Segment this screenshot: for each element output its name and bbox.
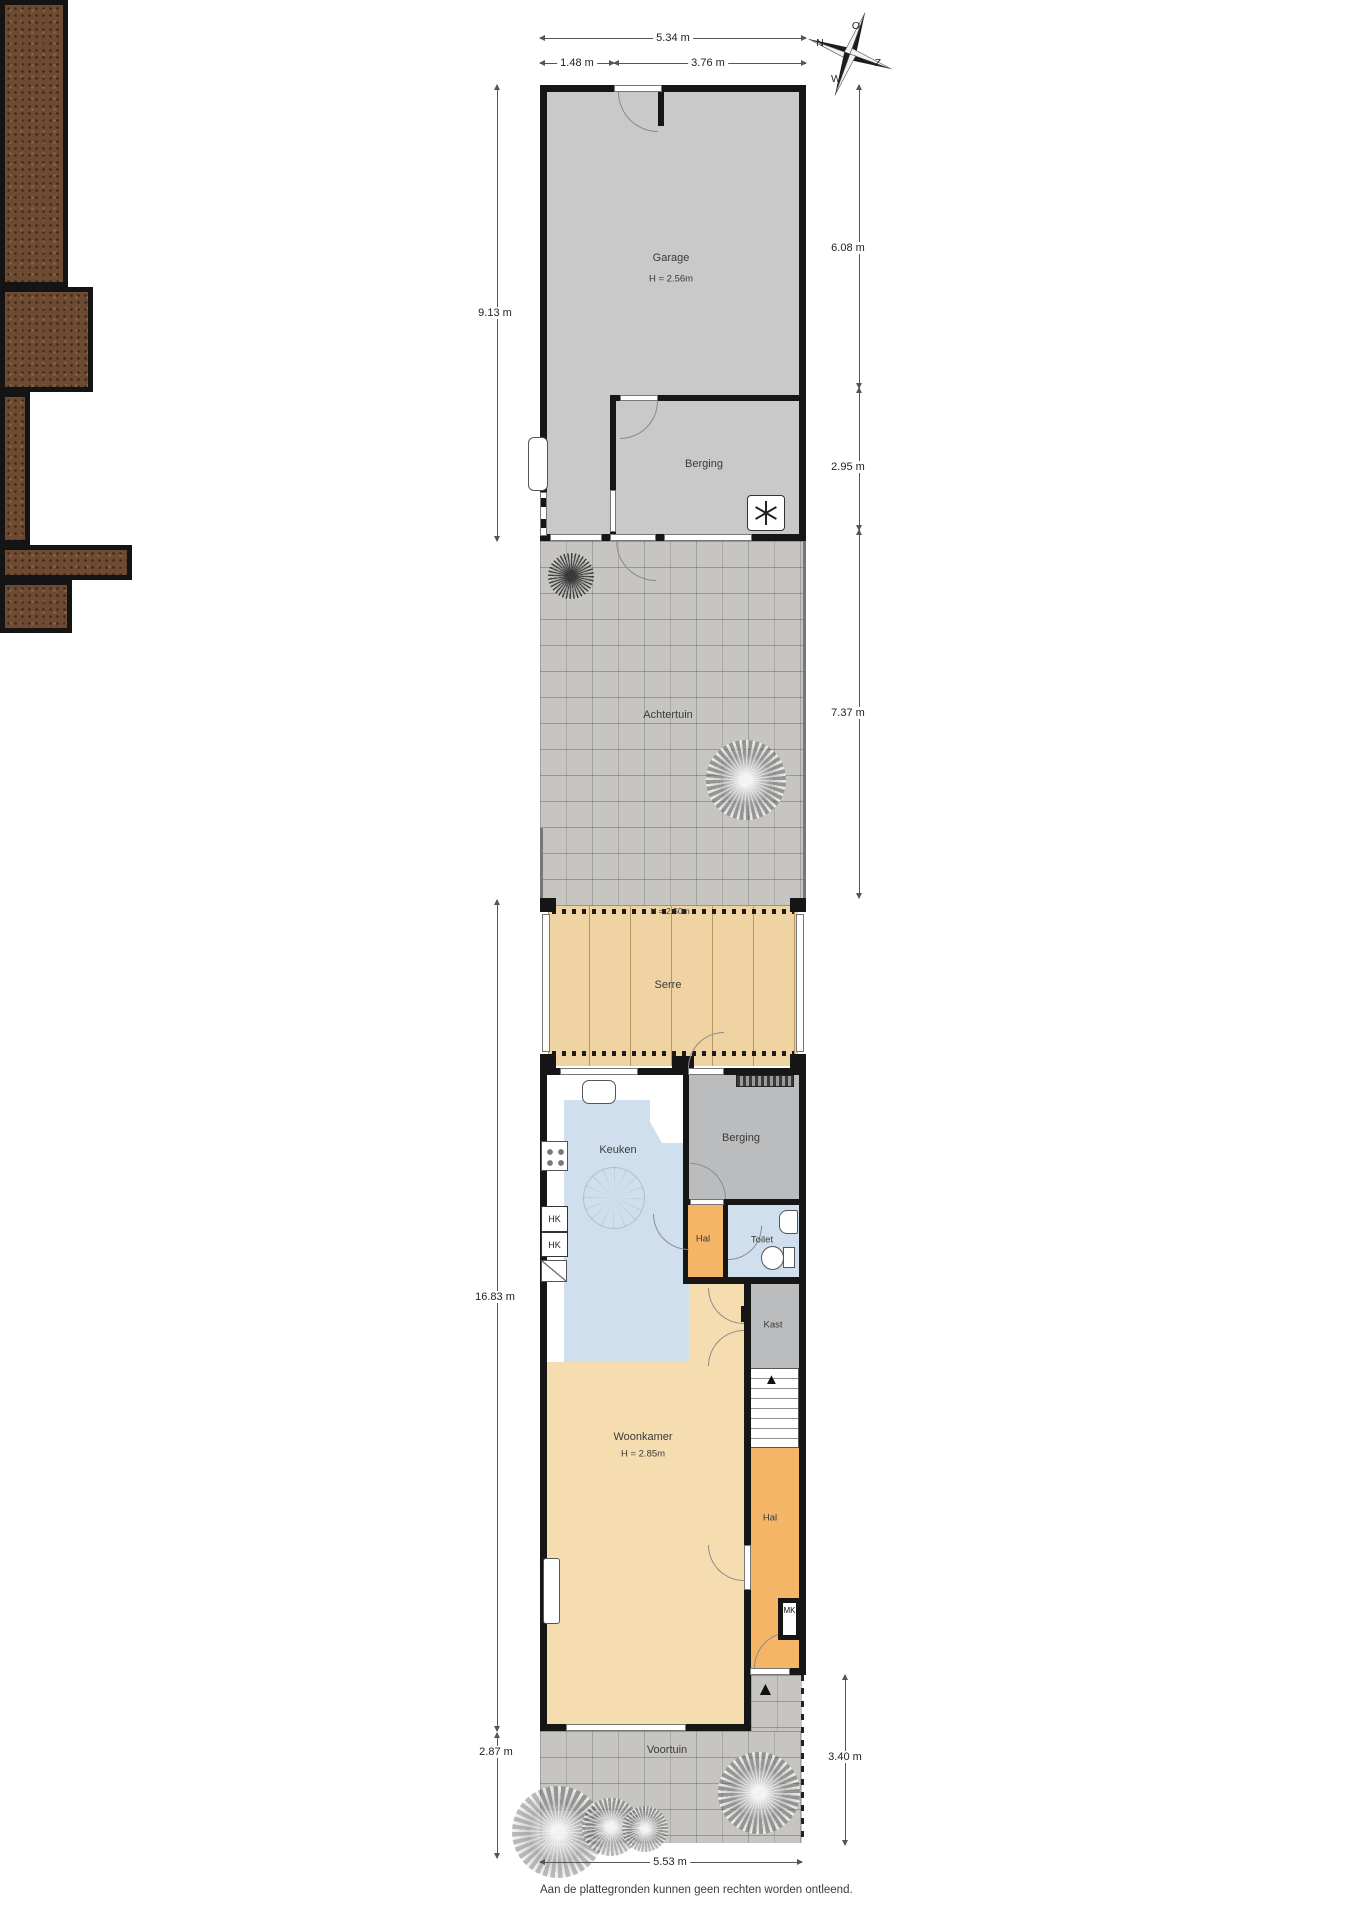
round-rug-ghost <box>583 1167 645 1229</box>
wall <box>799 1068 806 1675</box>
meterkast: MK <box>782 1602 797 1636</box>
compass-south-label: Z <box>875 57 882 69</box>
room-label-voortuin: Voortuin <box>647 1744 687 1756</box>
window <box>550 534 602 541</box>
garden-fence-left <box>540 828 543 906</box>
compass-rose: N O Z W <box>798 2 902 106</box>
window <box>542 914 550 1052</box>
closet-label: MK <box>784 1606 796 1615</box>
room-ceiling-serre: H = 2.50m <box>650 906 689 916</box>
stairs-up-arrow-icon: ▲ <box>764 1372 779 1387</box>
vent-grille <box>736 1075 794 1087</box>
door-opening <box>690 1199 724 1205</box>
ventilation-fan-icon <box>747 495 785 531</box>
dimension-label: 1.48 m <box>557 57 597 69</box>
dimension-label: 7.37 m <box>828 707 868 719</box>
room-ceiling-garage: H = 2.56m <box>649 274 693 285</box>
room-label-kast: Kast <box>763 1320 782 1331</box>
room-floor-woonkamer <box>547 1362 744 1724</box>
stove-icon <box>541 1141 568 1171</box>
room-label-keuken: Keuken <box>599 1144 636 1156</box>
dimension-label: 3.40 m <box>825 1751 865 1763</box>
room-floor-garage <box>540 85 806 541</box>
room-label-hal-midden: Hal <box>696 1234 710 1245</box>
shrub-icon <box>548 553 594 599</box>
room-label-toilet: Toilet <box>751 1235 773 1246</box>
disclaimer-text: Aan de plattegronden kunnen geen rechten… <box>540 1884 853 1896</box>
kitchen-sink-icon <box>582 1080 616 1104</box>
planter-voortuin-right <box>0 580 72 633</box>
wall <box>540 85 806 92</box>
room-label-achtertuin: Achtertuin <box>643 709 693 721</box>
door-opening <box>688 1068 724 1075</box>
door-opening <box>610 534 656 541</box>
wall <box>540 898 556 912</box>
closet-hk-1: HK <box>541 1206 568 1232</box>
voortuin-fence-right <box>801 1675 804 1843</box>
planter-voortuin-bottom <box>0 545 132 580</box>
room-label-serre: Serre <box>655 979 682 991</box>
wall <box>790 1054 806 1068</box>
dimension-line <box>859 85 860 388</box>
dimension-label: 5.53 m <box>650 1856 690 1868</box>
radiator <box>543 1558 560 1624</box>
closet-hk-2: HK <box>541 1232 568 1257</box>
closet-label: HK <box>548 1240 561 1250</box>
door-opening <box>614 85 662 92</box>
closet-label: HK <box>548 1214 561 1224</box>
compass-north-label: N <box>816 37 824 49</box>
planter-achtertuin-right <box>0 287 93 392</box>
window <box>560 1068 638 1075</box>
dimension-line <box>497 900 498 1731</box>
wall <box>683 1075 689 1205</box>
dimension-label: 5.34 m <box>653 32 693 44</box>
front-door-opening <box>750 1668 790 1675</box>
dimension-label: 16.83 m <box>472 1291 518 1303</box>
compass-east-label: O <box>852 20 860 32</box>
dimension-label: 9.13 m <box>475 307 515 319</box>
room-label-berging-huis: Berging <box>722 1132 760 1144</box>
floorplan-canvas: ▲ <box>0 0 1358 1920</box>
toilet-bowl-icon <box>761 1246 784 1270</box>
understairs-nook <box>541 1260 567 1282</box>
window <box>796 914 804 1052</box>
shrub-icon <box>718 1752 800 1834</box>
wall <box>540 1054 556 1068</box>
dimension-line <box>859 388 860 530</box>
dimension-label: 2.87 m <box>476 1746 516 1758</box>
side-door-object <box>528 437 548 491</box>
door-opening <box>744 1545 751 1590</box>
hand-basin-icon <box>779 1210 798 1234</box>
room-label-berging-garage: Berging <box>685 458 723 470</box>
wall <box>744 1675 751 1731</box>
dimension-label: 3.76 m <box>688 57 728 69</box>
wall <box>683 1277 799 1284</box>
wall <box>790 898 806 912</box>
garden-fence-right <box>803 541 806 901</box>
planter-voortuin-left <box>0 392 30 545</box>
wall <box>744 1284 751 1545</box>
room-ceiling-woonkamer: H = 2.85m <box>621 1449 665 1460</box>
wall <box>744 1590 751 1675</box>
tree-icon <box>706 740 786 820</box>
window <box>566 1724 686 1731</box>
room-label-garage: Garage <box>653 252 690 264</box>
gate-dash <box>541 498 546 507</box>
compass-west-label: W <box>831 73 841 85</box>
room-label-hal-entree: Hal <box>763 1513 777 1524</box>
dimension-label: 2.95 m <box>828 461 868 473</box>
entrance-arrow-icon: ▲ <box>756 1680 775 1699</box>
toilet-tank-icon <box>783 1247 795 1268</box>
room-label-woonkamer: Woonkamer <box>613 1431 672 1443</box>
shrub-icon <box>622 1806 668 1852</box>
window <box>610 490 616 532</box>
wall <box>658 92 664 126</box>
gate-dash <box>541 519 546 528</box>
window <box>664 534 752 541</box>
wall <box>799 85 806 541</box>
planter-achtertuin-left <box>0 0 68 287</box>
dimension-label: 6.08 m <box>828 242 868 254</box>
